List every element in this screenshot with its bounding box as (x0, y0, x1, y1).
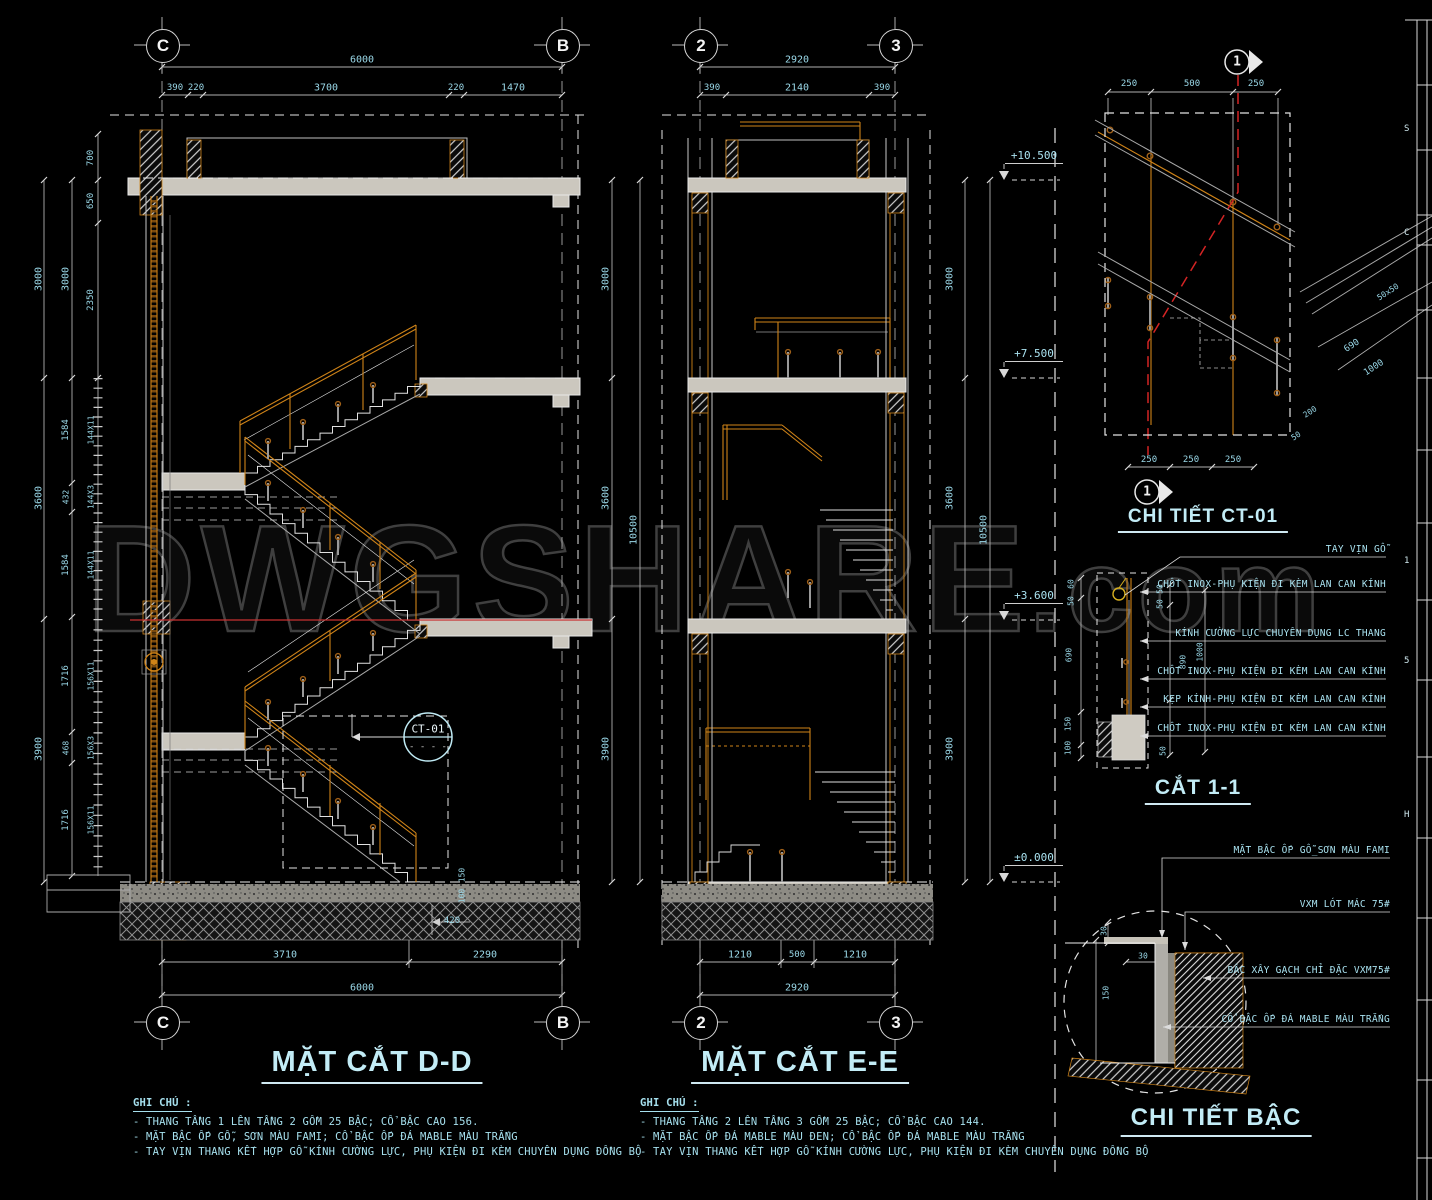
dim-label: 3600 (34, 486, 45, 510)
dim-label: 3600 (945, 486, 956, 510)
callout-label: CT-01 (411, 723, 444, 736)
elevation-label: +3.600 (1005, 589, 1063, 604)
dim-label: 1584 (61, 419, 71, 441)
grid-label: C (157, 1013, 169, 1033)
grid-bubble-2-bottom: 2 (684, 1006, 718, 1040)
elevation-label: +10.500 (1005, 149, 1063, 164)
ct01-step-dashed (1170, 318, 1235, 368)
dim-label: 156X11 (87, 662, 96, 691)
cat11-label: CHỐT INOX-PHỤ KIỆN ĐI KÈM LAN CAN KÍNH (1157, 579, 1386, 590)
outline-dashed (110, 115, 930, 948)
ct01-title: CHI TIẾT CT-01 (1118, 506, 1288, 533)
ct01-dashed-box (1105, 113, 1290, 435)
dim-label: 100 (458, 889, 467, 903)
notes-heading: GHI CHÚ : (640, 1096, 699, 1112)
ee-notes: GHI CHÚ : - THANG TẦNG 2 LÊN TẦNG 3 GỒM … (640, 1096, 1149, 1160)
cat11-label: CHỐT INOX-PHỤ KIỆN ĐI KÈM LAN CAN KÍNH (1157, 666, 1386, 677)
dim-label: 2920 (785, 983, 809, 994)
dim-label: 50 (1067, 596, 1076, 606)
dim-label: 30 (1100, 926, 1109, 936)
dim-label: 2350 (86, 289, 96, 311)
grid-bubble-3-bottom: 3 (879, 1006, 913, 1040)
grid-bubble-2-top: 2 (684, 29, 718, 63)
dim-label: 1470 (501, 83, 525, 94)
note-line: - THANG TẦNG 1 LÊN TẦNG 2 GỒM 25 BẬC; CỔ… (133, 1115, 642, 1130)
dim-label: 1210 (843, 950, 867, 961)
dim-label: 250 (1141, 455, 1157, 465)
note-line: - THANG TẦNG 2 LÊN TẦNG 3 GỒM 25 BẬC; CỔ… (640, 1115, 1149, 1130)
section-cut-red-line (1148, 75, 1238, 455)
dim-label: 50 (1159, 746, 1168, 756)
notes-heading: GHI CHÚ : (133, 1096, 192, 1112)
dim-label: 144X3 (87, 485, 96, 509)
cad-drawing-sheet: DWGSHARE.com (0, 0, 1432, 1200)
dim-label: 150 (1102, 986, 1111, 1000)
titleblock-fragment: 1 (1404, 556, 1414, 566)
dim-label: 3600 (601, 486, 612, 510)
bac-title: CHI TIẾT BẬC (1121, 1104, 1312, 1137)
elevation-label: ±0.000 (1005, 851, 1063, 866)
dim-label: 1210 (728, 950, 752, 961)
dim-label: 3000 (34, 267, 45, 291)
dim-label: 1716 (61, 809, 71, 831)
dim-label: 250 (1183, 455, 1199, 465)
dd-hatched-walls (140, 130, 464, 940)
dim-label: 3900 (34, 737, 45, 761)
grid-label: 3 (891, 36, 900, 56)
balusters (268, 278, 1277, 882)
cat11-label: CHỐT INOX-PHỤ KIỆN ĐI KÈM LAN CAN KÍNH (1157, 723, 1386, 734)
dim-label: 250 (1225, 455, 1241, 465)
dim-label: 60 (1067, 579, 1076, 589)
dim-label: 700 (86, 150, 96, 166)
grid-label: C (157, 36, 169, 56)
grid-label: B (557, 36, 569, 56)
titleblock-fragment: C (1404, 228, 1414, 238)
dim-label: 3900 (945, 737, 956, 761)
cat11-label: KÍNH CƯỜNG LỰC CHUYÊN DỤNG LC THANG (1175, 628, 1386, 639)
dim-label: 3710 (273, 950, 297, 961)
elevation-label: +7.500 (1005, 347, 1063, 362)
dim-label: 420 (444, 916, 460, 926)
cat11-title: CẮT 1-1 (1145, 776, 1251, 805)
dim-label: 250 (1121, 79, 1137, 89)
titleblock-fragment: 5 (1404, 656, 1414, 666)
dim-label: 690 (1065, 648, 1074, 662)
dim-label: 2920 (785, 55, 809, 66)
dim-label: 144X11 (87, 416, 96, 445)
glass-lines (244, 332, 1129, 846)
ee-title: MẶT CẮT E-E (691, 1046, 909, 1084)
dd-title: MẶT CẮT D-D (261, 1046, 482, 1084)
elevation-markers (1004, 164, 1060, 882)
dim-label: 2290 (473, 950, 497, 961)
titleblock-fragment: S (1404, 124, 1414, 134)
dim-label: 3000 (61, 267, 72, 291)
bac-label: MẶT BẬC ỐP GỖ_SƠN MÀU FAMI (1233, 845, 1390, 856)
dim-label: 3900 (601, 737, 612, 761)
ct01-stringer (1095, 120, 1432, 372)
handrail-section-icon (1113, 588, 1125, 600)
ee-hatched (690, 140, 906, 938)
ground-layers (47, 875, 933, 940)
dim-label: 100 (1064, 741, 1073, 755)
dd-stringers (245, 394, 420, 882)
note-line: - TAY VỊN THANG KẾT HỢP GỖ KÍNH CƯỜNG LỰ… (640, 1145, 1149, 1160)
section-marker-bottom (1135, 480, 1173, 504)
ee-slabs (688, 178, 906, 894)
grid-label: 2 (696, 1013, 705, 1033)
bac-stone-strip (1155, 943, 1168, 1063)
callout-dash: - - - - (409, 742, 447, 752)
ee-wall-liners (692, 195, 904, 882)
grid-label: B (557, 1013, 569, 1033)
section-marker-number: 1 (1143, 485, 1151, 500)
dim-label: 50 (1156, 599, 1165, 609)
section-marker-number: 1 (1233, 55, 1241, 70)
dim-label: 220 (448, 83, 464, 93)
grid-bubble-3-top: 3 (879, 29, 913, 63)
dim-label: 10500 (629, 515, 640, 545)
dd-steps (245, 380, 420, 882)
dim-label: 156X3 (87, 736, 96, 760)
note-line: - MẶT BẬC ỐP ĐÁ MABLE MÀU ĐEN; CỔ BẬC ỐP… (640, 1130, 1149, 1145)
bac-label: VXM LÓT MÁC 75# (1300, 899, 1390, 910)
ee-stairs-front (695, 510, 895, 882)
dim-label: 1716 (61, 665, 71, 687)
section-marker-top (1225, 50, 1263, 74)
dim-label: 500 (1184, 79, 1200, 89)
dim-label: 6000 (350, 983, 374, 994)
cat11-label: KẸP KÍNH-PHỤ KIỆN ĐI KÈM LAN CAN KÍNH (1163, 694, 1386, 705)
dim-label: 10500 (979, 515, 990, 545)
dim-label: 2140 (785, 83, 809, 94)
ct01-zone-box (283, 716, 448, 868)
dim-label: 390 (704, 83, 720, 93)
grid-bubble-c-bottom: C (146, 1006, 180, 1040)
dd-slabs (128, 178, 592, 750)
slab-top-dashes (120, 178, 933, 882)
dd-top-beam (187, 138, 467, 178)
grid-lines (162, 62, 895, 1004)
grid-label: 3 (891, 1013, 900, 1033)
dim-label: 150 (458, 868, 467, 882)
note-line: - MẶT BẬC ỐP GỖ, SƠN MÀU FAMI; CỔ BẬC ỐP… (133, 1130, 642, 1145)
dim-label: 30 (1138, 952, 1148, 961)
dim-label: 150 (1064, 717, 1073, 731)
grid-bubble-b-top: B (546, 29, 580, 63)
note-line: - TAY VỊN THANG KẾT HỢP GỖ KÍNH CƯỜNG LỰ… (133, 1145, 642, 1160)
dim-label: 468 (62, 741, 71, 755)
landing-dashed (162, 497, 338, 772)
dim-label: 390 (167, 83, 183, 93)
grid-label: 2 (696, 36, 705, 56)
grid-bubble-b-bottom: B (546, 1006, 580, 1040)
bac-label: BẬC XÂY GẠCH CHỈ ĐẶC VXM75# (1227, 965, 1390, 976)
dim-label: 3700 (314, 83, 338, 94)
dim-label: 3000 (945, 267, 956, 291)
dim-label: 500 (789, 950, 805, 960)
titleblock-strip (1405, 20, 1432, 1200)
dim-label: 250 (1248, 79, 1264, 89)
dim-label: 390 (874, 83, 890, 93)
dim-label: 1000 (1196, 642, 1205, 661)
dim-label: 432 (62, 490, 71, 504)
dim-label: 156X11 (87, 806, 96, 835)
grid-bubble-c-top: C (146, 29, 180, 63)
dim-label: 1584 (61, 554, 71, 576)
dim-label: 6000 (350, 55, 374, 66)
cat11-label: TAY VỊN GỖ (1326, 544, 1386, 555)
dim-label: 3000 (601, 267, 612, 291)
dim-label: 144X11 (87, 551, 96, 580)
dim-label: 220 (188, 83, 204, 93)
titleblock-fragment: H (1404, 810, 1414, 820)
dim-label: 650 (86, 193, 96, 209)
dd-notes: GHI CHÚ : - THANG TẦNG 1 LÊN TẦNG 2 GỒM … (133, 1096, 642, 1160)
dd-wall-lines (146, 196, 163, 882)
bac-label: CỔ BẬC ỐP ĐÁ MABLE MÀU TRẮNG (1221, 1014, 1390, 1025)
